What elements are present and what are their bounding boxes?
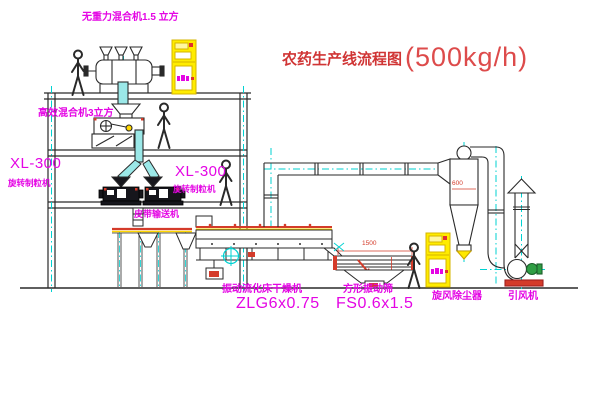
label-dryer-name: 振动流化床干燥机 [222,285,302,296]
label-sieve-name: 方形振动筛 [343,285,393,296]
label-high-efficiency-mixer: 高效混合机3立方 [38,109,114,120]
vibrating-sieve [333,243,415,288]
label-fan: 引风机 [508,292,538,303]
granulator-left [99,187,143,205]
label-dryer-model: ZLG6x0.75 [236,296,320,313]
label-granulator-left-name: 旋转制粒机 [8,179,51,188]
overhead-duct [264,163,438,227]
gravity-free-mixer [84,47,164,104]
label-granulator-right-model: XL-300 [175,164,226,180]
diagram-title: 农药生产线流程图 (500kg/h) [282,42,528,73]
label-granulator-right-name: 旋转制粒机 [173,185,216,194]
label-cyclone: 旋风除尘器 [432,292,482,303]
induced-draft-fan [505,260,543,287]
dimension-cyclone-diameter: 600 [452,181,463,188]
label-gravity-free-mixer: 无重力混合机1.5 立方 [82,13,179,24]
control-cabinet-top [172,40,196,94]
label-sieve-model: FS0.6x1.5 [336,296,413,313]
title-text: 农药生产线流程图 [282,48,402,73]
label-granulator-left-model: XL-300 [10,156,61,172]
title-capacity: (500kg/h) [405,42,528,73]
person-figure [158,104,170,149]
person-figure [72,51,84,96]
dimension-sieve-length: 1500 [362,241,376,248]
exhaust-stack [508,179,535,258]
control-cabinet-ground [426,233,450,287]
y-chute [112,160,162,187]
process-flow-diagram: 农药生产线流程图 (500kg/h) 无重力混合机1.5 立方 高效混合机3立方… [0,0,600,403]
fluid-bed-dryer [196,216,342,279]
belt-conveyor [112,229,196,287]
label-belt-conveyor: 皮带输送机 [134,210,179,219]
